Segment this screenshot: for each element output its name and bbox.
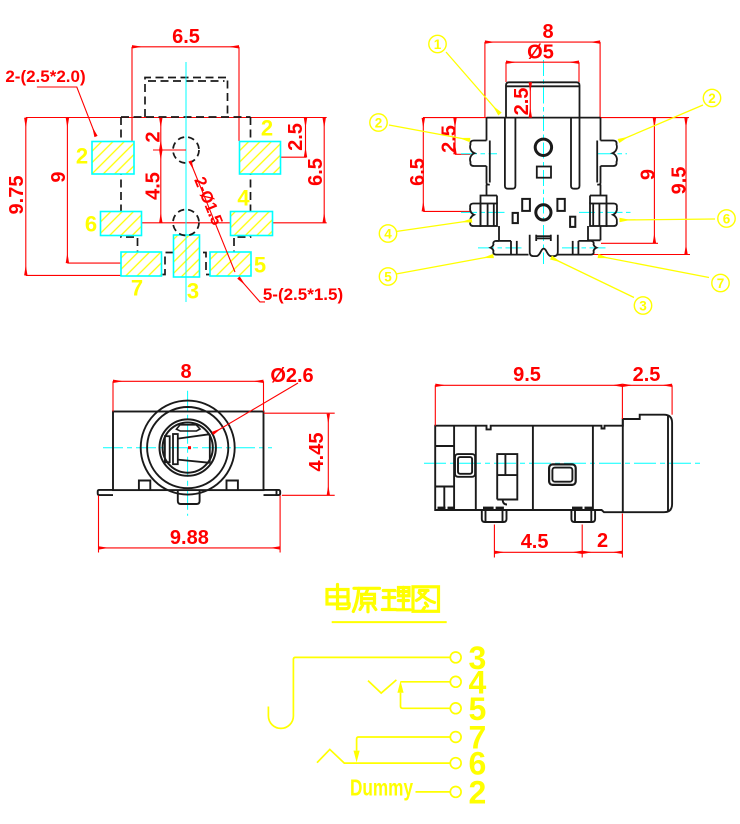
svg-text:Ø2.6: Ø2.6 (270, 365, 313, 387)
svg-text:6: 6 (723, 211, 731, 226)
svg-text:9: 9 (638, 169, 660, 180)
svg-text:4: 4 (237, 185, 250, 210)
svg-text:3: 3 (639, 298, 647, 313)
svg-text:4.5: 4.5 (143, 172, 165, 200)
svg-text:1: 1 (434, 37, 442, 52)
svg-text:7: 7 (717, 276, 725, 291)
svg-text:Ø5: Ø5 (527, 42, 554, 64)
svg-text:2: 2 (597, 530, 608, 552)
svg-text:6: 6 (85, 211, 97, 236)
svg-text:2.5: 2.5 (511, 88, 533, 116)
svg-text:4.45: 4.45 (306, 433, 328, 472)
svg-text:2.5: 2.5 (633, 364, 661, 386)
svg-text:5: 5 (254, 252, 266, 277)
svg-text:5-(2.5*1.5): 5-(2.5*1.5) (263, 285, 343, 304)
svg-text:9.5: 9.5 (513, 364, 541, 386)
svg-text:3: 3 (187, 278, 199, 303)
svg-text:9.75: 9.75 (6, 176, 28, 215)
svg-text:4: 4 (384, 226, 392, 241)
svg-text:2-(2.5*2.0): 2-(2.5*2.0) (5, 67, 85, 86)
svg-text:6.5: 6.5 (305, 158, 327, 186)
svg-text:2: 2 (76, 143, 88, 168)
svg-text:2: 2 (375, 115, 383, 130)
svg-text:9.5: 9.5 (669, 167, 691, 195)
svg-text:2: 2 (261, 115, 273, 140)
svg-text:2: 2 (708, 91, 716, 106)
svg-text:6.5: 6.5 (172, 26, 200, 48)
svg-text:9: 9 (48, 171, 70, 182)
svg-text:2: 2 (469, 774, 487, 810)
svg-text:Dummy: Dummy (350, 775, 413, 801)
svg-text:2.5: 2.5 (285, 123, 307, 151)
svg-text:7: 7 (131, 275, 143, 300)
svg-text:2: 2 (143, 131, 165, 142)
svg-text:8: 8 (542, 21, 553, 43)
svg-text:2.5: 2.5 (439, 125, 461, 153)
svg-text:5: 5 (384, 269, 392, 284)
svg-text:9.88: 9.88 (170, 527, 209, 549)
svg-text:6.5: 6.5 (407, 158, 429, 186)
svg-text:4.5: 4.5 (521, 531, 549, 553)
svg-text:8: 8 (180, 361, 191, 383)
